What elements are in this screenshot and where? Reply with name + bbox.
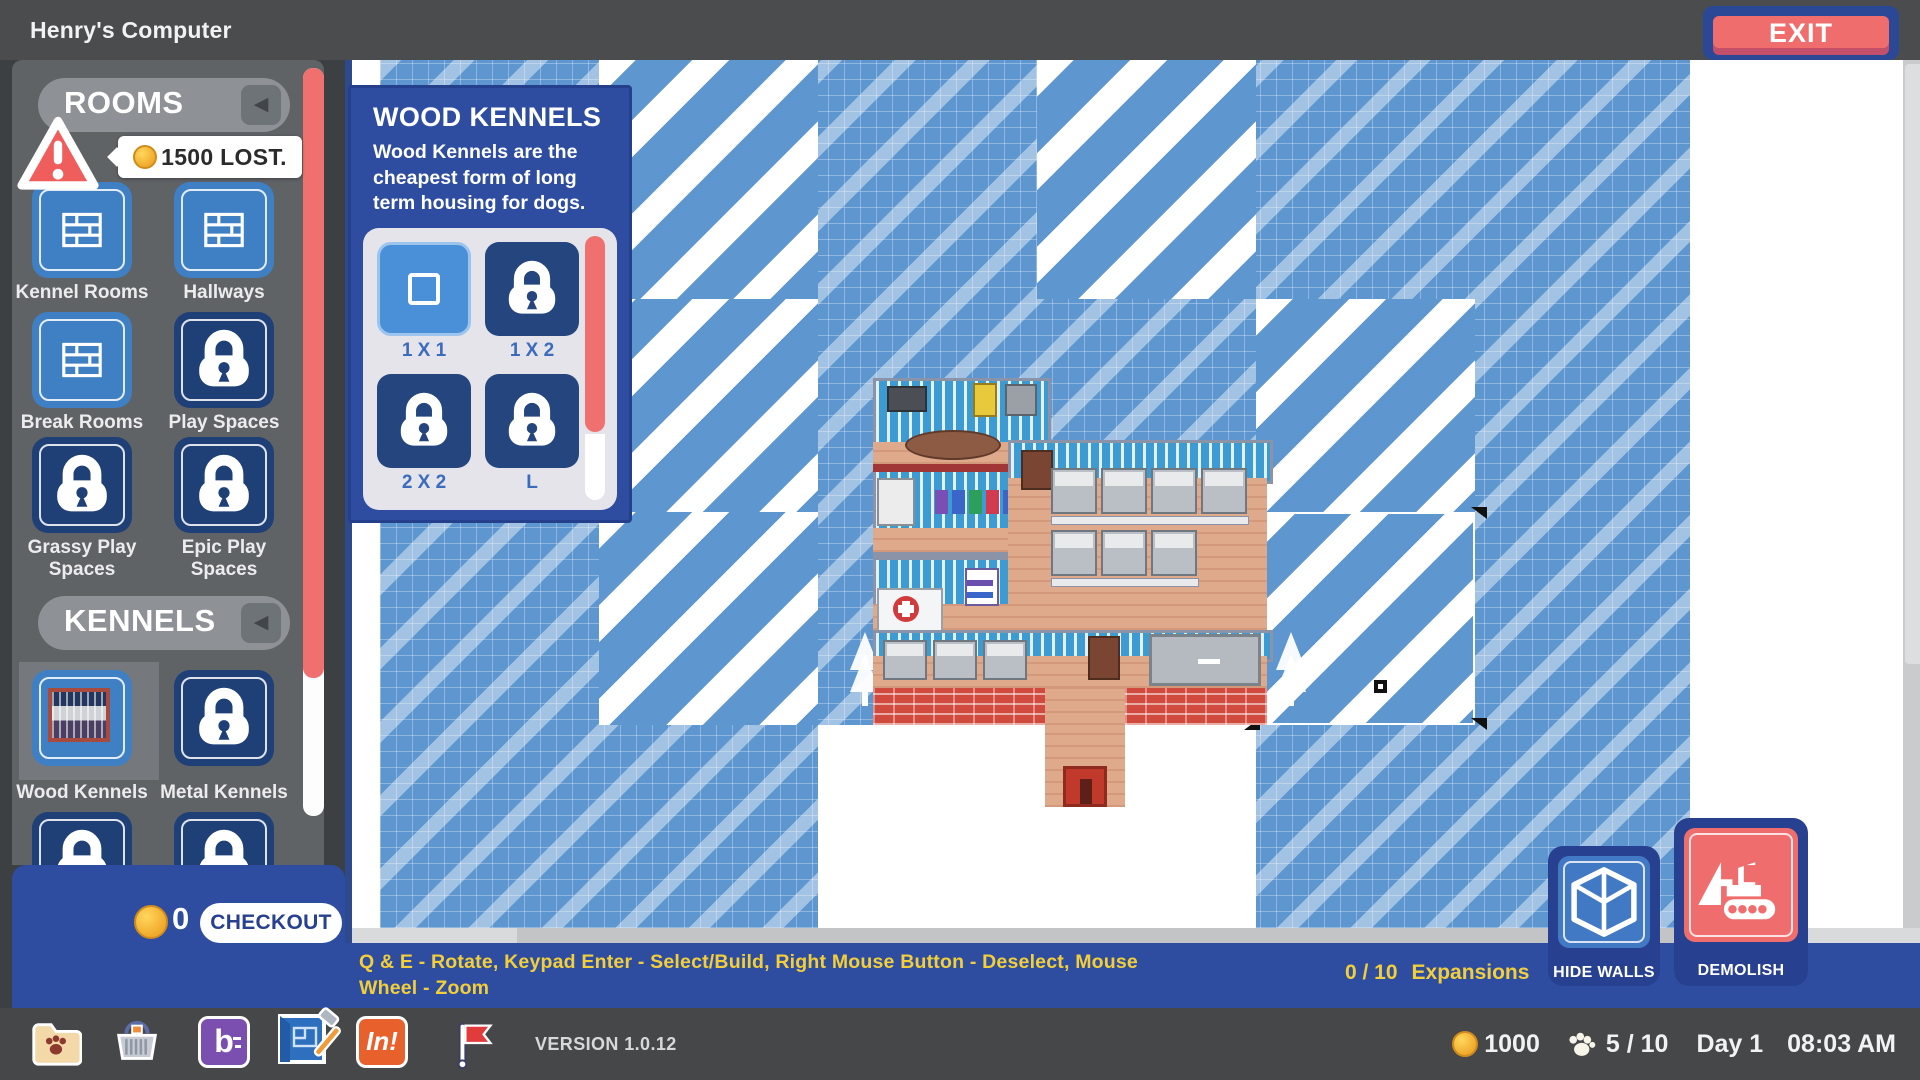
kennel-stall <box>1101 530 1147 576</box>
lock-icon <box>193 687 255 749</box>
exit-label: EXIT <box>1713 16 1889 48</box>
coin-icon <box>1452 1031 1478 1057</box>
room-item-label: Hallways <box>149 282 299 304</box>
door-sprite <box>1088 636 1120 680</box>
kennel-item-label: Metal Kennels <box>149 782 299 804</box>
kennel-stall <box>1151 468 1197 514</box>
room-item-label: Grassy Play Spaces <box>12 537 157 581</box>
kennel-item-locked[interactable] <box>174 812 274 865</box>
entrance-path <box>1045 688 1125 725</box>
size-option-l[interactable] <box>485 374 579 468</box>
poster-sprite <box>973 383 997 417</box>
plot-corner-handle[interactable] <box>1471 718 1487 730</box>
expansions-label: Expansions <box>1412 961 1530 985</box>
wood-kennels-popup: WOOD KENNELS Wood Kennels are the cheape… <box>348 85 632 523</box>
table-sprite <box>905 430 1001 460</box>
b-app-glyph: b <box>214 1023 234 1059</box>
size-option-label: 1 X 2 <box>485 340 579 362</box>
popup-description: Wood Kennels are the cheapest form of lo… <box>373 140 615 217</box>
shopping-basket-icon[interactable] <box>110 1016 164 1070</box>
shelf-sprite <box>1005 384 1037 416</box>
canvas-vertical-scrollbar-handle[interactable] <box>1905 64 1920 664</box>
kennel-stall <box>1151 530 1197 576</box>
collapse-kennels-button[interactable]: ◀ <box>241 603 281 643</box>
kennel-size-panel: 1 X 1 1 X 2 2 X 2 L <box>363 228 617 510</box>
lock-icon <box>193 329 255 391</box>
kennel-stall <box>983 640 1027 680</box>
expansions-counter: 0 / 10 Expansions <box>1345 961 1529 985</box>
lock-icon <box>395 392 453 450</box>
demolish-label: DEMOLISH <box>1674 962 1808 980</box>
door-sprite <box>1021 450 1053 490</box>
room-item-hallways[interactable] <box>174 182 274 278</box>
popup-title: WOOD KENNELS <box>373 102 601 133</box>
lock-icon <box>503 392 561 450</box>
room-item-label: Play Spaces <box>149 412 299 434</box>
washer-sprite <box>877 478 915 526</box>
size-option-label: 2 X 2 <box>377 472 471 494</box>
coin-count: 1000 <box>1484 1030 1540 1059</box>
locker-sprite <box>952 490 965 514</box>
kennel-stall <box>1051 530 1097 576</box>
demolish-button[interactable]: DEMOLISH <box>1674 818 1808 986</box>
paw-icon <box>1564 1027 1598 1061</box>
expansions-count: 0 / 10 <box>1345 961 1398 985</box>
kennel-item-metal-kennels[interactable] <box>174 670 274 766</box>
kennel-stall <box>1201 468 1247 514</box>
b-app-icon[interactable]: b <box>198 1016 250 1068</box>
brick-base <box>1125 688 1267 725</box>
room-item-epic-play-spaces[interactable] <box>174 437 274 533</box>
taskbar: b In! VERSION 1.0.12 <box>0 1008 1920 1080</box>
coin-icon <box>133 145 157 169</box>
size-panel-scrollbar-track[interactable] <box>585 434 605 500</box>
brick-wall-icon <box>56 204 108 256</box>
size-option-label: L <box>485 472 579 494</box>
keybinding-help-text: Q & E - Rotate, Keypad Enter - Select/Bu… <box>359 949 1149 1002</box>
exit-button[interactable]: EXIT <box>1703 6 1899 60</box>
lock-icon <box>193 829 255 865</box>
room-item-play-spaces[interactable] <box>174 312 274 408</box>
kennel-stall <box>883 640 927 680</box>
shelf-sprite <box>965 568 999 606</box>
collapse-rooms-button[interactable]: ◀ <box>241 85 281 125</box>
clock-time: 08:03 AM <box>1787 1030 1896 1059</box>
flag-icon[interactable] <box>448 1016 502 1070</box>
build-cursor <box>1374 680 1387 693</box>
shelter-building[interactable] <box>873 378 1267 725</box>
plot-corner-handle[interactable] <box>1471 507 1487 519</box>
window-title: Henry's Computer <box>30 17 232 44</box>
hide-walls-icon-box <box>1558 856 1650 948</box>
medical-sign-sprite <box>877 588 943 634</box>
brick-wall-icon <box>56 334 108 386</box>
size-option-label: 1 X 1 <box>377 340 471 362</box>
lock-icon <box>51 829 113 865</box>
size-option-1x1[interactable] <box>377 242 471 336</box>
expansion-plot[interactable] <box>1037 60 1256 299</box>
kennels-header-label: KENNELS <box>64 603 216 639</box>
canvas-vertical-scrollbar[interactable] <box>1903 60 1920 943</box>
brick-base <box>873 688 1045 725</box>
size-option-1x2[interactable] <box>485 242 579 336</box>
cart-total: 0 <box>172 901 189 937</box>
map-outside-area <box>818 725 1256 928</box>
locker-sprite <box>935 490 948 514</box>
game-window: ROOMS ◀ Kennel Rooms Hallways <box>0 0 1920 1080</box>
kennel-stall <box>1051 468 1097 514</box>
money-lost-tooltip: 1500 LOST. <box>118 136 302 178</box>
checkout-button[interactable]: CHECKOUT <box>200 903 342 943</box>
expansion-plot[interactable] <box>1256 299 1475 512</box>
size-option-2x2[interactable] <box>377 374 471 468</box>
top-bar: Henry's Computer <box>0 0 1920 60</box>
warning-icon <box>16 114 100 198</box>
size-panel-scrollbar-handle[interactable] <box>585 236 605 432</box>
canvas-horizontal-scrollbar-handle[interactable] <box>517 928 1677 943</box>
room-item-label: Epic Play Spaces <box>149 537 299 581</box>
room-item-label: Kennel Rooms <box>12 282 157 304</box>
hide-walls-button[interactable]: HIDE WALLS <box>1548 846 1660 986</box>
version-text: VERSION 1.0.12 <box>535 1034 677 1055</box>
kennel-rail <box>1051 516 1249 525</box>
lock-icon <box>503 260 561 318</box>
hide-walls-label: HIDE WALLS <box>1548 964 1660 982</box>
square-icon <box>408 273 440 305</box>
in-app-icon[interactable]: In! <box>356 1016 408 1068</box>
kennel-stall <box>933 640 977 680</box>
room-item-grassy-play-spaces[interactable] <box>32 437 132 533</box>
room-item-break-rooms[interactable] <box>32 312 132 408</box>
kennel-rail <box>1051 578 1199 587</box>
in-app-glyph: In! <box>366 1026 398 1056</box>
sidebar-scrollbar-handle[interactable] <box>303 68 324 678</box>
day-label: Day 1 <box>1696 1030 1763 1059</box>
kennel-item-wood-kennels[interactable] <box>32 670 132 766</box>
money-lost-text: 1500 LOST. <box>161 144 287 171</box>
checkout-panel: 0 CHECKOUT <box>12 865 345 1008</box>
entrance-porch <box>1063 766 1107 807</box>
expansion-plot[interactable] <box>599 512 818 725</box>
dog-count: 5 / 10 <box>1606 1030 1669 1059</box>
build-app-icon[interactable] <box>272 1004 348 1074</box>
brick-wall-icon <box>198 204 250 256</box>
kennels-section-header[interactable]: KENNELS ◀ <box>38 596 290 650</box>
kennel-item-label: Wood Kennels <box>12 782 157 804</box>
locker-sprite <box>986 490 999 514</box>
outdoor-pen-sign <box>1149 634 1261 686</box>
kennel-item-locked[interactable] <box>32 812 132 865</box>
status-cluster: 1000 5 / 10 Day 1 08:03 AM <box>1452 1008 1896 1080</box>
room-item-label: Break Rooms <box>12 412 157 434</box>
wood-kennel-icon <box>48 688 110 742</box>
locker-sprite <box>969 490 982 514</box>
demolish-icon-box <box>1684 828 1798 942</box>
lock-icon <box>51 454 113 516</box>
lock-icon <box>193 454 255 516</box>
kennel-stall <box>1101 468 1147 514</box>
dog-folder-icon[interactable] <box>28 1016 82 1070</box>
tv-sprite <box>887 386 927 412</box>
coin-icon <box>134 905 168 939</box>
